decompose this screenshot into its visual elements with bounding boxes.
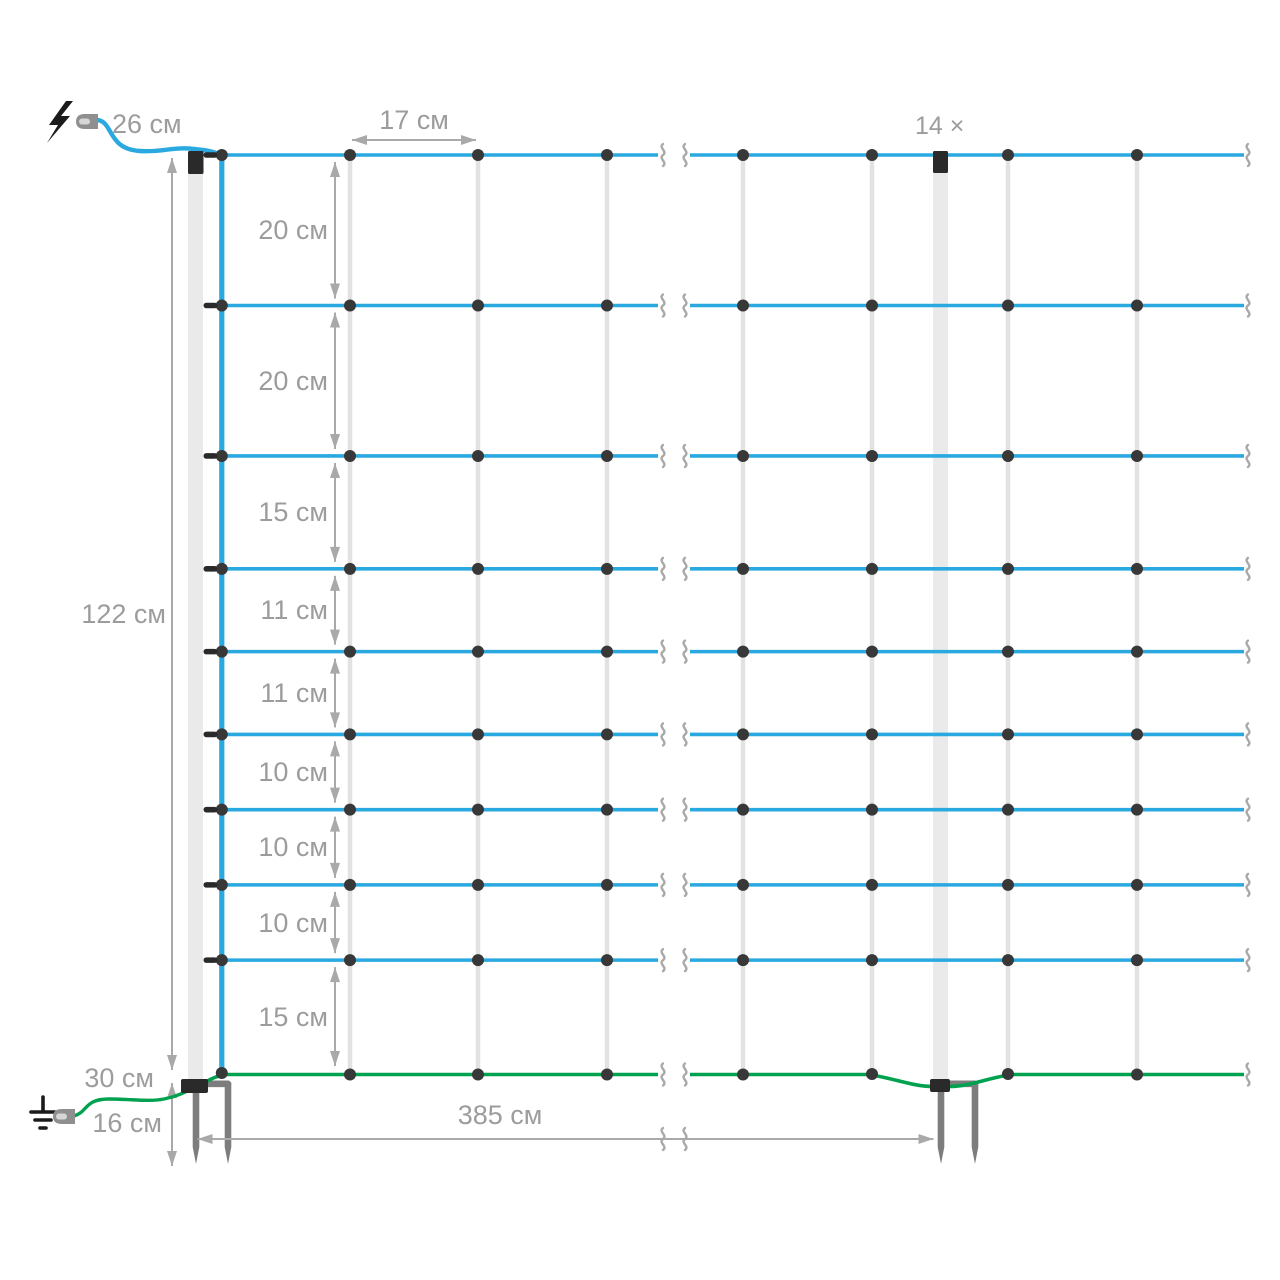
wire-knot [344,879,356,891]
row-spacing-label: 10 см [238,905,328,941]
wire-clip [204,303,218,309]
wire-knot [737,804,749,816]
wire-knot [1002,804,1014,816]
wire-knot [737,879,749,891]
wire-knot [1002,646,1014,658]
wire-knot [472,646,484,658]
wire-knot [216,954,228,966]
wire-knot [344,450,356,462]
wire-knot [1131,299,1143,311]
wire-knot [344,299,356,311]
wire-knot [866,879,878,891]
wire-knot [216,299,228,311]
wire-clip [204,957,218,963]
wire-clip [204,807,218,813]
wire-knot [1002,879,1014,891]
wire-break-mark [684,1128,687,1150]
wire-knot [344,804,356,816]
row-spacing-dim-arrowhead [330,547,340,562]
wire-knot [344,563,356,575]
wire-break-mark [662,641,665,663]
wire-knot [737,299,749,311]
wire-knot [472,804,484,816]
wire-knot [866,804,878,816]
wire-knot [737,149,749,161]
row-spacing-dim-arrowhead [330,283,340,298]
ground-icon [31,1097,55,1128]
wire-break-mark [662,1128,665,1150]
wire-break-mark [684,294,687,316]
wire-knot [472,954,484,966]
wire-break-mark [684,799,687,821]
power-cable-connector-slot [79,119,90,125]
wire-knot [601,450,613,462]
post2-top-cap [933,151,948,173]
row-spacing-label: 10 см [238,829,328,865]
row-spacing-dim-arrowhead [330,659,340,674]
wire-knot [472,149,484,161]
row-spacing-dim-arrowhead [330,863,340,878]
wire-knot [1002,728,1014,740]
fence-diagram: 26 см 17 см 14 × 122 см 30 см 16 см 385 … [0,0,1280,1280]
row-spacing-dim-arrowhead [330,741,340,756]
wire-knot [344,149,356,161]
wire-knot [216,450,228,462]
wire-break-mark [1247,1064,1250,1086]
wire-knot [737,954,749,966]
wire-knot [1131,879,1143,891]
post-spacing-dim-arrowhead [198,1134,213,1144]
post-spacing-label: 385 см [430,1097,570,1133]
row-spacing-dim-arrowhead [330,712,340,727]
wire-knot [472,450,484,462]
spike-length-dim-arrowhead [167,1151,177,1166]
wire-knot [601,1069,613,1081]
wire-knot [344,954,356,966]
wire-break-mark [662,799,665,821]
wire-knot [344,646,356,658]
row-spacing-label: 10 см [238,754,328,790]
row-spacing-dim-arrowhead [330,788,340,803]
wire-knot [216,149,228,161]
wire-knot [1131,1069,1143,1081]
wire-knot [866,1068,878,1080]
wire-knot [216,804,228,816]
wire-knot [216,879,228,891]
wire-knot [866,450,878,462]
wire-knot [737,450,749,462]
wire-knot [1131,804,1143,816]
wire-knot [1002,563,1014,575]
wire-break-mark [1247,723,1250,745]
wire-break-mark [684,1064,687,1086]
wire-break-mark [684,641,687,663]
row-spacing-dim-arrowhead [330,1051,340,1066]
row-spacing-label: 11 см [238,592,328,628]
row-spacing-label: 11 см [238,675,328,711]
wire-break-mark [662,294,665,316]
wire-knot [1131,450,1143,462]
wire-knot [866,728,878,740]
wire-knot [472,299,484,311]
spike-length-label: 16 см [62,1105,162,1141]
row-spacing-dim-arrowhead [330,630,340,645]
wire-break-mark [684,723,687,745]
wire-knot [866,299,878,311]
wire-knot [216,646,228,658]
wire-break-mark [662,723,665,745]
row-spacing-dim-arrowhead [330,312,340,327]
row-spacing-dim-arrowhead [330,892,340,907]
row-spacing-dim-arrowhead [330,463,340,478]
wire-knot [601,728,613,740]
post1-ground-clip [181,1079,208,1093]
wire-knot [472,1069,484,1081]
wire-knot [737,646,749,658]
post2-ground-clip [930,1079,950,1092]
wire-knot [1002,954,1014,966]
bottom-cable-length-label: 30 см [54,1060,154,1096]
top-cable-length-label: 26 см [112,106,182,142]
row-spacing-label: 20 см [238,363,328,399]
row-spacing-label: 15 см [238,999,328,1035]
wire-knot [1002,1068,1014,1080]
wire-knot [1131,149,1143,161]
wire-knot [1131,563,1143,575]
row-spacing-label: 15 см [238,494,328,530]
wire-knot [601,954,613,966]
row-spacing-dim-arrowhead [330,817,340,832]
wire-break-mark [684,874,687,896]
wire-knot [737,728,749,740]
wire-knot [1002,450,1014,462]
wire-break-mark [662,144,665,166]
row-spacing-dim-arrowhead [330,162,340,177]
wire-break-mark [662,1064,665,1086]
row-spacing-dim-arrowhead [330,967,340,982]
fence-net-drawing [0,0,1280,1280]
mesh-width-label: 17 см [354,102,474,138]
post1-top-cap [188,151,204,174]
wire-break-mark [1247,641,1250,663]
wire-knot [601,299,613,311]
post-spacing-dim-arrowhead [919,1134,934,1144]
post-ground-spike [972,1083,979,1164]
net-height-label: 122 см [61,596,166,632]
wire-break-mark [684,949,687,971]
wire-knot [601,646,613,658]
wire-knot [472,728,484,740]
wire-break-mark [1247,144,1250,166]
wire-knot [866,563,878,575]
wire-knot [344,1069,356,1081]
post-ground-spike [225,1083,232,1164]
wire-knot [601,563,613,575]
net-height-dim-arrowhead [167,158,177,173]
wire-break-mark [1247,874,1250,896]
wire-knot [866,954,878,966]
wire-clip [204,882,218,888]
post-ground-spike [193,1083,200,1164]
row-spacing-dim-arrowhead [330,938,340,953]
wire-break-mark [1247,799,1250,821]
wire-break-mark [662,874,665,896]
wire-knot [601,804,613,816]
wire-break-mark [1247,445,1250,467]
wire-break-mark [1247,294,1250,316]
wire-knot [737,563,749,575]
wire-knot [601,149,613,161]
wire-clip [204,732,218,738]
wire-knot [216,563,228,575]
row-spacing-dim-arrowhead [330,576,340,591]
wire-knot [472,563,484,575]
post-count-label: 14 × [915,108,964,144]
wire-clip [204,566,218,572]
wire-knot [216,728,228,740]
wire-knot [472,879,484,891]
wire-clip [204,649,218,655]
wire-knot [216,1067,228,1079]
wire-break-mark [662,558,665,580]
lightning-icon [47,101,73,143]
row-spacing-label: 20 см [238,212,328,248]
wire-knot [866,149,878,161]
wire-clip [204,453,218,459]
row-spacing-dim-arrowhead [330,434,340,449]
wire-knot [737,1069,749,1081]
wire-knot [1131,954,1143,966]
wire-break-mark [1247,558,1250,580]
wire-knot [866,646,878,658]
wire-break-mark [684,558,687,580]
wire-break-mark [662,445,665,467]
post-ground-spike [938,1083,945,1164]
wire-knot [1002,299,1014,311]
wire-knot [1131,646,1143,658]
wire-clip [204,152,218,158]
fence-post [933,152,948,1086]
wire-knot [1131,728,1143,740]
fence-post [188,152,203,1086]
wire-knot [344,728,356,740]
wire-knot [601,879,613,891]
net-height-dim-arrowhead [167,1055,177,1070]
wire-break-mark [662,949,665,971]
wire-break-mark [1247,949,1250,971]
wire-break-mark [684,144,687,166]
wire-break-mark [684,445,687,467]
wire-knot [1002,149,1014,161]
